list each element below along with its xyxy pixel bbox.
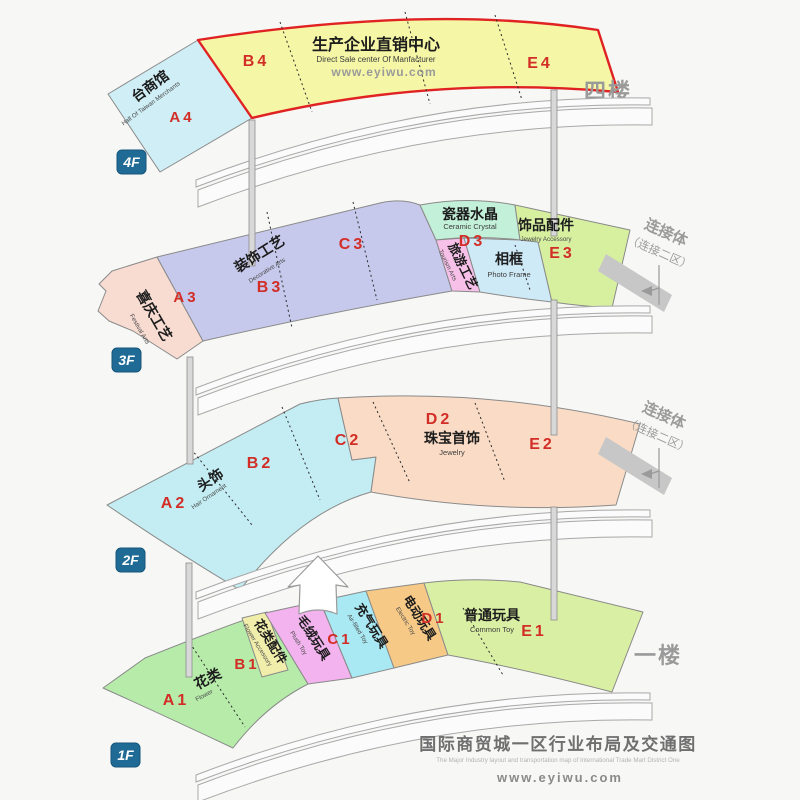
pillar-3f-right [551, 300, 557, 435]
map-title-zh: 国际商贸城一区行业布局及交通图 [419, 734, 697, 754]
zone-code-b1: B1 [234, 656, 259, 673]
zone-code-e1: E1 [521, 623, 547, 640]
pillar-4f-left [249, 120, 255, 266]
side-label-1f: 一楼 [634, 643, 682, 668]
jewelry-label-zh: 珠宝首饰 [424, 430, 480, 446]
map-canvas: 台商馆 Hall Of Taiwan Merchants A4 B4 生产企业直… [0, 0, 800, 800]
pillar-2f-right [551, 507, 557, 620]
zone-code-d1: D1 [421, 610, 446, 627]
zone-code-d2: D2 [426, 411, 452, 428]
photo-frame-label-zh: 相框 [495, 251, 523, 267]
zone-code-a2: A2 [161, 495, 187, 512]
pillar-4f-right [551, 90, 557, 236]
trade-mart-floor-map: 台商馆 Hall Of Taiwan Merchants A4 B4 生产企业直… [0, 0, 800, 800]
zone-code-a1: A1 [163, 692, 189, 709]
zone-code-d3: D3 [459, 233, 485, 250]
zone-code-c1: C1 [327, 631, 352, 648]
direct-sale-url: www.eyiwu.com [330, 65, 436, 79]
common-toy-label-zh: 普通玩具 [464, 607, 520, 623]
zone-code-e2: E2 [529, 436, 555, 453]
floor-badge-1f: 1F [111, 743, 140, 767]
zone-code-a3: A3 [173, 289, 198, 306]
direct-sale-label-en: Direct Sale center Of Manfacturer [316, 55, 435, 64]
direct-sale-label-zh: 生产企业直销中心 [312, 35, 440, 54]
jewelry-accessory-label-en: Jewelry Accessory [521, 236, 573, 243]
floor-badge-3f-text: 3F [118, 352, 135, 368]
pillar-2f-left [186, 563, 192, 677]
ceramic-label-zh: 瓷器水晶 [442, 206, 498, 222]
zone-code-b4: B4 [243, 53, 269, 70]
zone-code-c2: C2 [335, 432, 361, 449]
floor-badge-2f: 2F [116, 548, 145, 572]
floor-badge-1f-text: 1F [117, 747, 134, 763]
zone-code-c3: C3 [339, 236, 365, 253]
ceramic-label-en: Ceramic Crystal [443, 222, 497, 231]
map-title-en: The Major Industry layout and transporta… [436, 757, 680, 764]
floor-badge-4f-text: 4F [122, 154, 140, 170]
floor-badge-4f: 4F [117, 150, 146, 174]
floor-badge-3f: 3F [112, 348, 141, 372]
map-title-url: www.eyiwu.com [496, 770, 623, 785]
photo-frame-label-en: Photo Frame [487, 270, 530, 279]
zone-code-e3: E3 [549, 245, 575, 262]
zone-code-b2: B2 [247, 455, 273, 472]
pillar-3f-left [187, 357, 193, 464]
zone-code-a4: A4 [169, 109, 194, 126]
zone-code-b3: B3 [257, 279, 283, 296]
jewelry-label-en: Jewelry [439, 448, 465, 457]
zone-code-e4: E4 [527, 55, 553, 72]
jewelry-accessory-label-zh: 饰品配件 [518, 217, 574, 233]
common-toy-label-en: Common Toy [470, 625, 514, 634]
floor-badge-2f-text: 2F [121, 552, 139, 568]
